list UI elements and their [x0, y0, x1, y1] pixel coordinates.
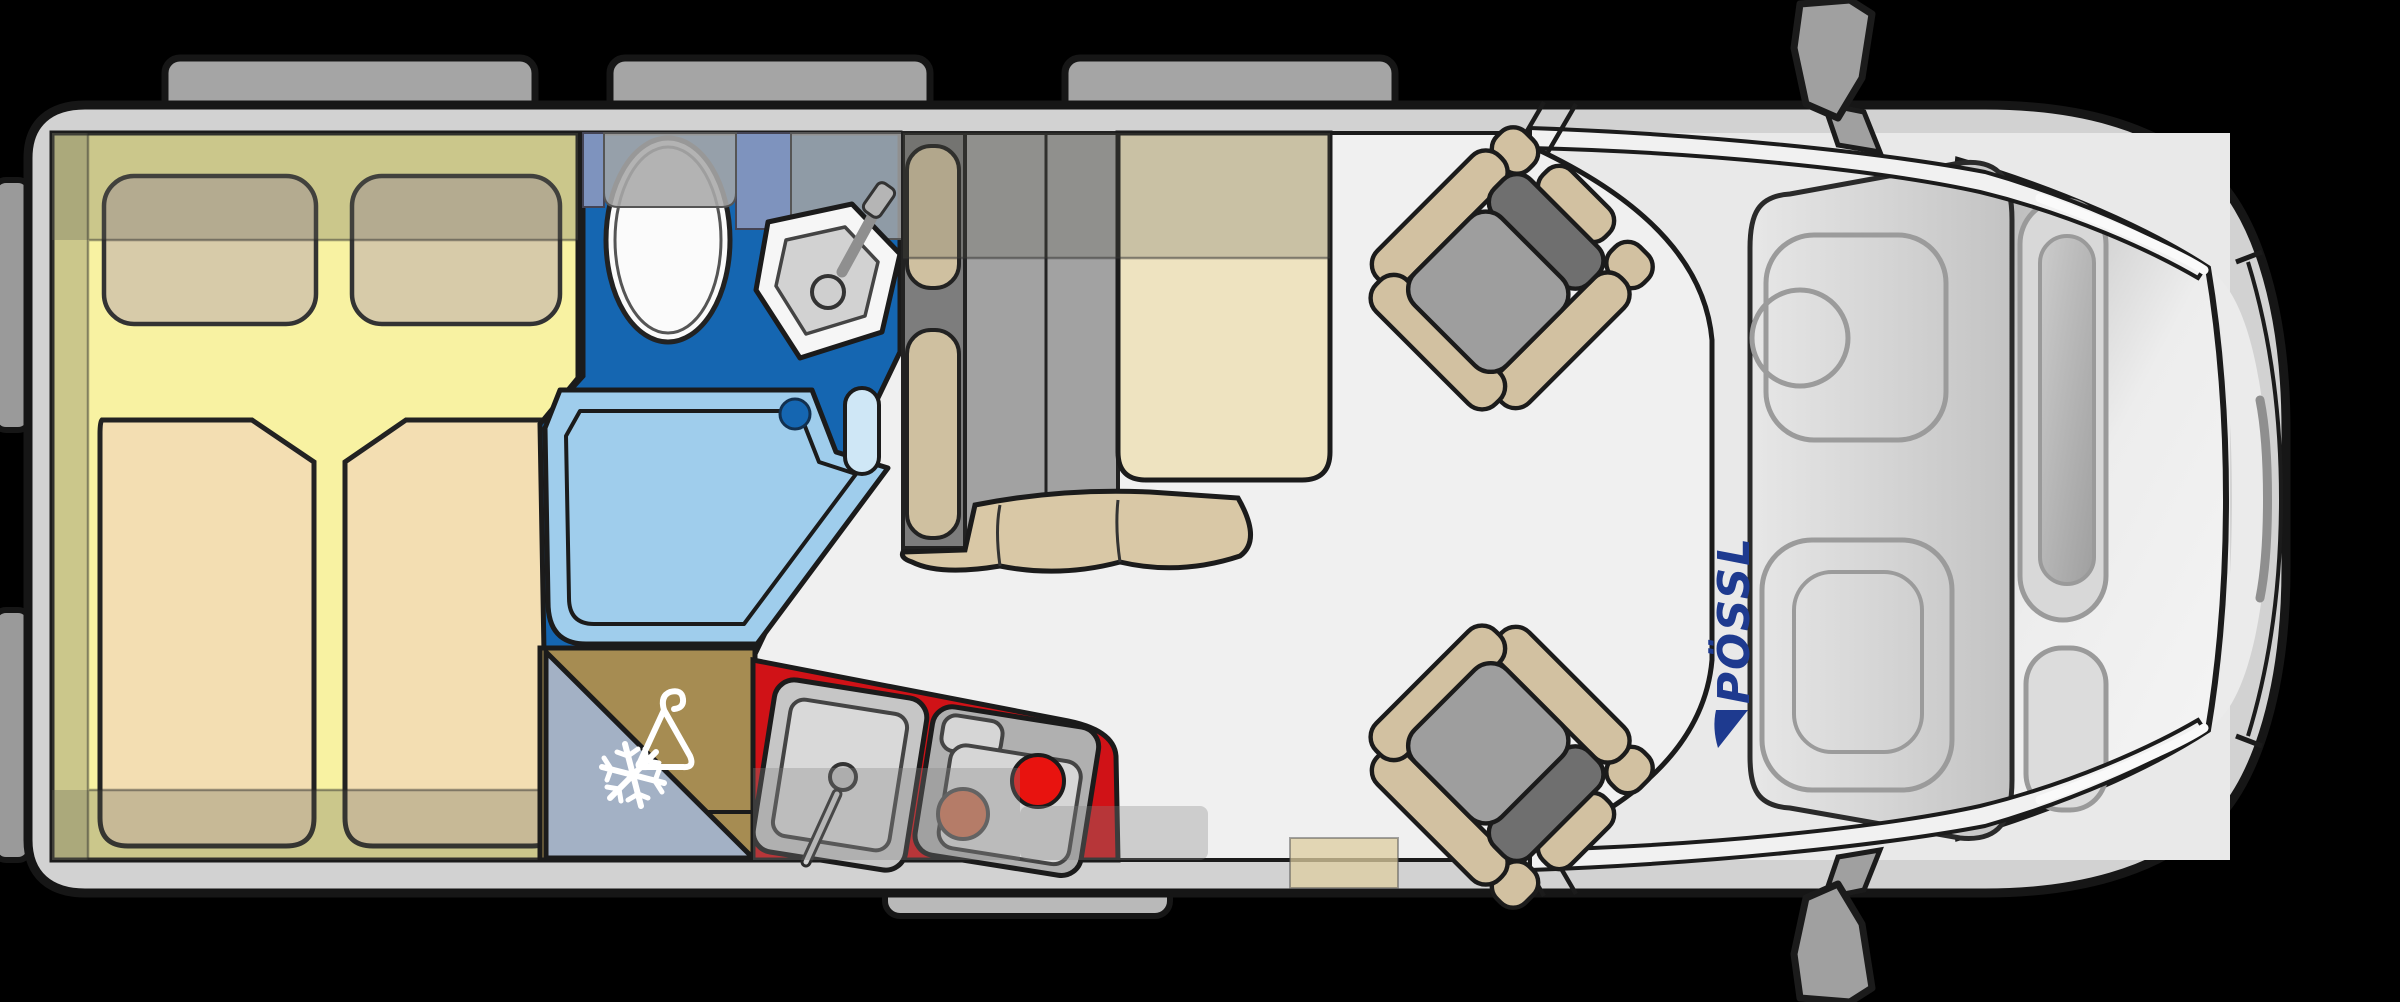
sliding-door-overlay	[753, 768, 1020, 860]
shower-drain	[780, 399, 810, 429]
mattress-right	[345, 420, 560, 846]
bench-cushion	[907, 330, 959, 538]
wall-cabinet	[583, 133, 604, 207]
rear-bed-area	[52, 133, 578, 860]
shower-handle	[845, 388, 879, 474]
overhead-cabinet-shade-left	[52, 133, 88, 860]
overhead-locker-shade	[903, 133, 1330, 258]
campervan-floorplan: PÖSSL	[0, 0, 2400, 1002]
wall-cabinet	[736, 133, 791, 229]
logo-text: PÖSSL	[1707, 536, 1760, 704]
floorplan-canvas: PÖSSL	[0, 0, 2400, 1002]
door-side-cabinet	[1290, 838, 1398, 888]
dash-console	[2040, 236, 2094, 584]
cockpit-outline	[1750, 162, 2012, 838]
overhead-cabinet-over-toilet	[604, 133, 736, 207]
sink-drain	[812, 276, 844, 308]
overhead-cabinet-shade-top	[52, 133, 578, 240]
mattress-left	[100, 420, 314, 846]
overhead-cabinet-shade-bottom	[52, 790, 540, 860]
wardrobe-fridge-block	[540, 648, 755, 860]
sliding-door-panel	[1020, 806, 1208, 860]
